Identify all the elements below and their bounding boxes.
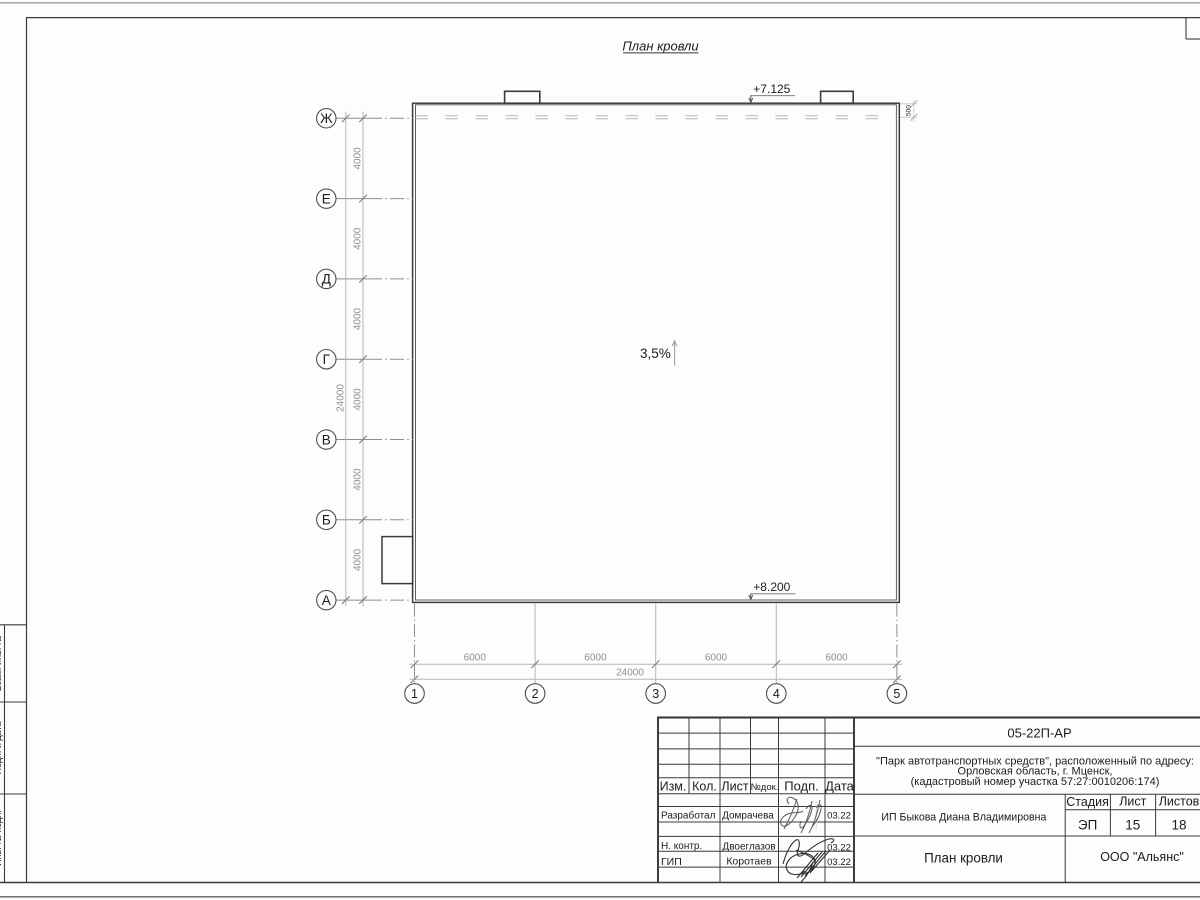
- svg-text:4000: 4000: [352, 548, 363, 571]
- svg-text:Лист: Лист: [1119, 795, 1146, 809]
- svg-text:Коротаев: Коротаев: [726, 856, 772, 868]
- svg-text:18: 18: [1171, 818, 1186, 833]
- svg-text:Н. контр.: Н. контр.: [661, 841, 702, 852]
- svg-text:6000: 6000: [825, 653, 848, 664]
- svg-text:(кадастровый номер участка 57:: (кадастровый номер участка 57:27:0010206…: [911, 776, 1160, 788]
- svg-text:Стадия: Стадия: [1066, 795, 1109, 809]
- svg-text:5: 5: [893, 687, 900, 701]
- svg-text:+8.200: +8.200: [753, 580, 790, 594]
- svg-text:Г: Г: [323, 352, 331, 367]
- svg-text:Е: Е: [322, 191, 331, 206]
- svg-text:Инв. № подл.: Инв. № подл.: [0, 810, 3, 866]
- svg-text:05-22П-АР: 05-22П-АР: [1007, 726, 1071, 741]
- svg-text:А: А: [322, 593, 331, 608]
- svg-text:03.22: 03.22: [827, 857, 851, 868]
- svg-text:03.22: 03.22: [827, 810, 851, 821]
- svg-text:Б: Б: [322, 513, 331, 528]
- svg-text:Двоеглазов: Двоеглазов: [722, 841, 775, 852]
- svg-text:6000: 6000: [584, 653, 607, 664]
- svg-text:6000: 6000: [705, 653, 728, 664]
- svg-text:3,5%: 3,5%: [640, 346, 671, 361]
- svg-text:ГИП: ГИП: [661, 856, 682, 868]
- svg-text:4000: 4000: [352, 468, 363, 491]
- svg-text:Взам. инв. №: Взам. инв. №: [0, 635, 3, 691]
- svg-text:В: В: [322, 432, 331, 447]
- svg-text:Лист: Лист: [721, 780, 748, 794]
- svg-text:ЭП: ЭП: [1078, 818, 1097, 833]
- svg-text:4: 4: [773, 687, 780, 701]
- svg-text:03.22: 03.22: [827, 842, 851, 853]
- svg-text:ИП Быкова Диана Владимировна: ИП Быкова Диана Владимировна: [881, 812, 1046, 824]
- svg-text:+7.125: +7.125: [753, 82, 790, 96]
- svg-text:4000: 4000: [352, 227, 363, 250]
- svg-text:15: 15: [1125, 818, 1140, 833]
- svg-text:6000: 6000: [464, 653, 487, 664]
- svg-text:4000: 4000: [352, 307, 363, 330]
- svg-text:Изм.: Изм.: [660, 780, 687, 794]
- svg-text:Ж: Ж: [320, 111, 333, 126]
- svg-text:Подп. и дата: Подп. и дата: [0, 721, 3, 774]
- svg-text:Д: Д: [322, 272, 331, 287]
- svg-text:500: 500: [905, 105, 912, 116]
- svg-text:План кровли: План кровли: [622, 38, 698, 53]
- svg-text:Подп.: Подп.: [784, 779, 819, 794]
- svg-text:24000: 24000: [336, 384, 347, 412]
- svg-text:Листов: Листов: [1159, 795, 1200, 809]
- svg-text:3: 3: [652, 687, 659, 701]
- svg-text:Домрачева: Домрачева: [722, 810, 774, 821]
- svg-text:4000: 4000: [352, 147, 363, 170]
- svg-text:24000: 24000: [616, 668, 644, 679]
- svg-text:Дата: Дата: [825, 779, 855, 794]
- svg-text:2: 2: [532, 687, 539, 701]
- svg-text:План кровли: План кровли: [924, 851, 1003, 866]
- svg-text:Разработал: Разработал: [661, 809, 716, 821]
- svg-text:ООО "Альянс": ООО "Альянс": [1100, 850, 1184, 864]
- svg-text:Кол.: Кол.: [692, 780, 717, 794]
- svg-text:№док.: №док.: [751, 782, 779, 793]
- svg-text:4000: 4000: [352, 388, 363, 411]
- svg-text:1: 1: [411, 687, 418, 701]
